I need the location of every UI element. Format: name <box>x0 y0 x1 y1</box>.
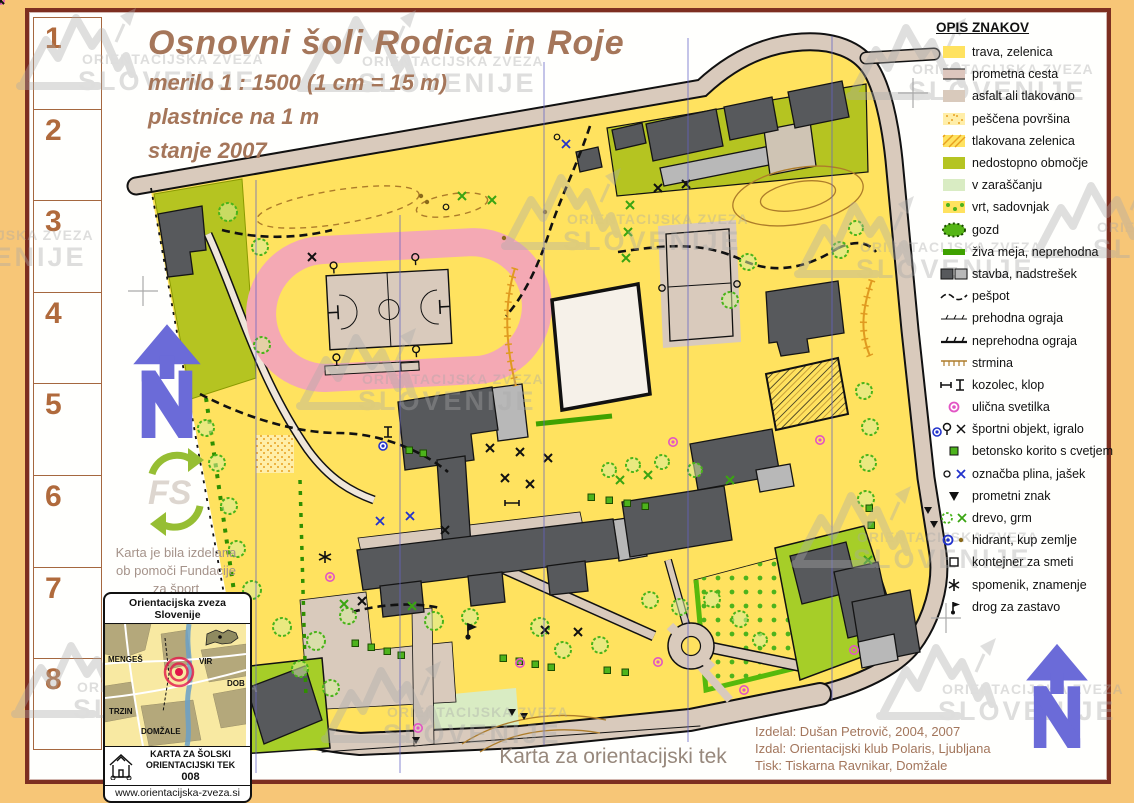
row-number-cell-1: 1 <box>33 17 102 109</box>
legend-item-overgrown: v zaraščanju <box>936 174 1108 196</box>
legend-item-planter: betonsko korito s cvetjem <box>936 440 1108 462</box>
row-number-cell-8: 8 <box>33 658 102 750</box>
scanned-orienteering-map: { "title": { "main": "Osnovni šoli Rodic… <box>0 0 1134 798</box>
map-title-block: Osnovni šoli Rodica in Roje merilo 1 : 1… <box>148 24 625 165</box>
legend-forest-icon <box>936 222 972 238</box>
inset-footer-line1: KARTA ZA ŠOLSKI <box>134 749 247 760</box>
legend-label: trava, zelenica <box>972 45 1053 59</box>
legend-label: strmina <box>972 356 1013 370</box>
row-number-cell-7: 7 <box>33 567 102 659</box>
legend-garden-icon <box>936 199 972 215</box>
legend-label: hidrant, kup zemlje <box>972 533 1077 547</box>
legend-tree-bush-icon <box>936 510 972 526</box>
legend-item-garden: vrt, sadovnjak <box>936 196 1108 218</box>
legend-label: asfalt ali tlakovano <box>972 89 1075 103</box>
north-arrow-icon <box>124 320 210 438</box>
legend-slope-icon <box>936 355 972 371</box>
legend-fence-impassable-icon <box>936 333 972 349</box>
legend-item-road: prometna cesta <box>936 63 1108 85</box>
legend-trash-icon <box>936 554 972 570</box>
legend-label: kozolec, klop <box>972 378 1044 392</box>
legend-monument-icon <box>936 577 972 593</box>
inset-footer-line2: ORIENTACIJSKI TEK <box>134 760 247 771</box>
location-inset: Orientacijska zveza Slovenije MEN <box>103 592 252 803</box>
legend-building-icon <box>936 266 972 282</box>
legend-footpath-icon <box>936 288 972 304</box>
school-map-logo <box>108 752 134 780</box>
legend-hedge-icon <box>936 244 972 260</box>
legend-title: OPIS ZNAKOV <box>936 20 1108 35</box>
legend-item-fence-impassable: neprehodna ograja <box>936 329 1108 351</box>
row-number-cell-6: 6 <box>33 475 102 567</box>
legend-label: vrt, sadovnjak <box>972 200 1049 214</box>
legend-gas-mark-icon <box>936 466 972 482</box>
legend-item-tree-bush: drevo, grm <box>936 507 1108 529</box>
legend-hydrant-mound-icon <box>936 532 972 548</box>
map-survey-year: stanje 2007 <box>148 137 625 165</box>
sponsor-caption-line: Karta je bila izdelana <box>100 544 252 562</box>
legend-paved-green-icon <box>936 133 972 149</box>
credits-block: Izdelal: Dušan Petrovič, 2004, 2007Izdal… <box>755 723 1085 774</box>
legend-label: označba plina, jašek <box>972 467 1085 481</box>
legend: OPIS ZNAKOV trava, zelenicaprometna cest… <box>936 20 1108 618</box>
legend-item-forest: gozd <box>936 219 1108 241</box>
legend-grass-icon <box>936 44 972 60</box>
legend-item-monument: spomenik, znamenje <box>936 574 1108 596</box>
legend-label: tlakovana zelenica <box>972 134 1075 148</box>
legend-fence-passable-icon <box>936 310 972 326</box>
legend-overgrown-icon <box>936 177 972 193</box>
map-scale: merilo 1 : 1500 (1 cm = 15 m) <box>148 69 625 97</box>
legend-item-forbidden: nedostopno območje <box>936 152 1108 174</box>
inset-place-dob: DOB <box>227 679 245 688</box>
legend-item-hedge: živa meja, neprehodna <box>936 241 1108 263</box>
row-number-cell-5: 5 <box>33 383 102 475</box>
map-footer-caption: Karta za orientacijski tek <box>443 745 783 769</box>
credit-line: Tisk: Tiskarna Ravnikar, Domžale <box>755 757 1085 774</box>
row-number-cell-2: 2 <box>33 109 102 201</box>
legend-label: nedostopno območje <box>972 156 1088 170</box>
legend-item-flagpole: drog za zastavo <box>936 596 1108 618</box>
legend-label: peščena površina <box>972 112 1070 126</box>
inset-place-menges: MENGEŠ <box>108 655 143 664</box>
legend-item-traffic-sign: prometni znak <box>936 485 1108 507</box>
legend-label: gozd <box>972 223 999 237</box>
legend-label: v zaraščanju <box>972 178 1042 192</box>
inset-place-trzin: TRZIN <box>109 707 133 716</box>
legend-label: drog za zastavo <box>972 600 1060 614</box>
row-number-cell-4: 4 <box>33 292 102 384</box>
legend-asphalt-icon <box>936 88 972 104</box>
legend-planter-icon <box>936 443 972 459</box>
legend-label: pešpot <box>972 289 1010 303</box>
map-title: Osnovni šoli Rodica in Roje <box>148 24 625 63</box>
inset-url: www.orientacijska-zveza.si <box>105 785 250 801</box>
legend-item-sport-playground: športni objekt, igralo <box>936 418 1108 440</box>
legend-road-icon <box>936 66 972 82</box>
legend-forbidden-icon <box>936 155 972 171</box>
row-number-column: 12345678 <box>33 17 102 750</box>
inset-footer: KARTA ZA ŠOLSKI ORIENTACIJSKI TEK 008 <box>105 746 250 785</box>
legend-label: prometni znak <box>972 489 1051 503</box>
sponsor-block: FS Karta je bila izdelanaob pomoči Funda… <box>100 444 252 598</box>
legend-item-footpath: pešpot <box>936 285 1108 307</box>
inset-map-number: 008 <box>134 772 247 783</box>
legend-item-hydrant-mound: hidrant, kup zemlje <box>936 529 1108 551</box>
legend-flagpole-icon <box>936 599 972 615</box>
legend-label: stavba, nadstrešek <box>972 267 1077 281</box>
legend-label: drevo, grm <box>972 511 1032 525</box>
legend-item-sand: peščena površina <box>936 108 1108 130</box>
legend-item-streetlamp: ulična svetilka <box>936 396 1108 418</box>
fs-foundation-logo: FS <box>100 444 252 540</box>
legend-traffic-sign-icon <box>936 488 972 504</box>
inset-place-domzale: DOMŽALE <box>141 727 181 736</box>
inset-place-vir: VIR <box>199 657 213 666</box>
inset-map: MENGEŠ VIR DOB TRZIN DOMŽALE <box>105 624 246 746</box>
legend-label: prehodna ograja <box>972 311 1063 325</box>
legend-hayrack-bench-icon <box>936 377 972 393</box>
legend-item-hayrack-bench: kozolec, klop <box>936 374 1108 396</box>
legend-item-slope: strmina <box>936 352 1108 374</box>
legend-item-grass: trava, zelenica <box>936 41 1108 63</box>
sponsor-caption: Karta je bila izdelanaob pomoči Fundacij… <box>100 544 252 598</box>
legend-label: športni objekt, igralo <box>972 422 1084 436</box>
inset-header: Orientacijska zveza Slovenije <box>105 594 250 624</box>
legend-label: ulična svetilka <box>972 400 1050 414</box>
legend-streetlamp-icon <box>936 399 972 415</box>
legend-item-trash: kontejner za smeti <box>936 551 1108 573</box>
legend-label: neprehodna ograja <box>972 334 1077 348</box>
legend-item-asphalt: asfalt ali tlakovano <box>936 85 1108 107</box>
legend-item-building: stavba, nadstrešek <box>936 263 1108 285</box>
legend-label: betonsko korito s cvetjem <box>972 444 1113 458</box>
legend-label: živa meja, neprehodna <box>972 245 1098 259</box>
legend-item-paved-green: tlakovana zelenica <box>936 130 1108 152</box>
legend-sport-playground-icon <box>936 421 972 437</box>
legend-sand-icon <box>936 111 972 127</box>
row-number-cell-3: 3 <box>33 200 102 292</box>
sponsor-caption-line: ob pomoči Fundacije <box>100 562 252 580</box>
legend-item-gas-mark: označba plina, jašek <box>936 463 1108 485</box>
map-contour-interval: plastnice na 1 m <box>148 103 625 131</box>
svg-text:FS: FS <box>148 474 192 512</box>
legend-label: spomenik, znamenje <box>972 578 1087 592</box>
legend-label: kontejner za smeti <box>972 555 1073 569</box>
legend-item-fence-passable: prehodna ograja <box>936 307 1108 329</box>
credit-line: Izdelal: Dušan Petrovič, 2004, 2007 <box>755 723 1085 740</box>
legend-label: prometna cesta <box>972 67 1058 81</box>
credit-line: Izdal: Orientacijski klub Polaris, Ljubl… <box>755 740 1085 757</box>
